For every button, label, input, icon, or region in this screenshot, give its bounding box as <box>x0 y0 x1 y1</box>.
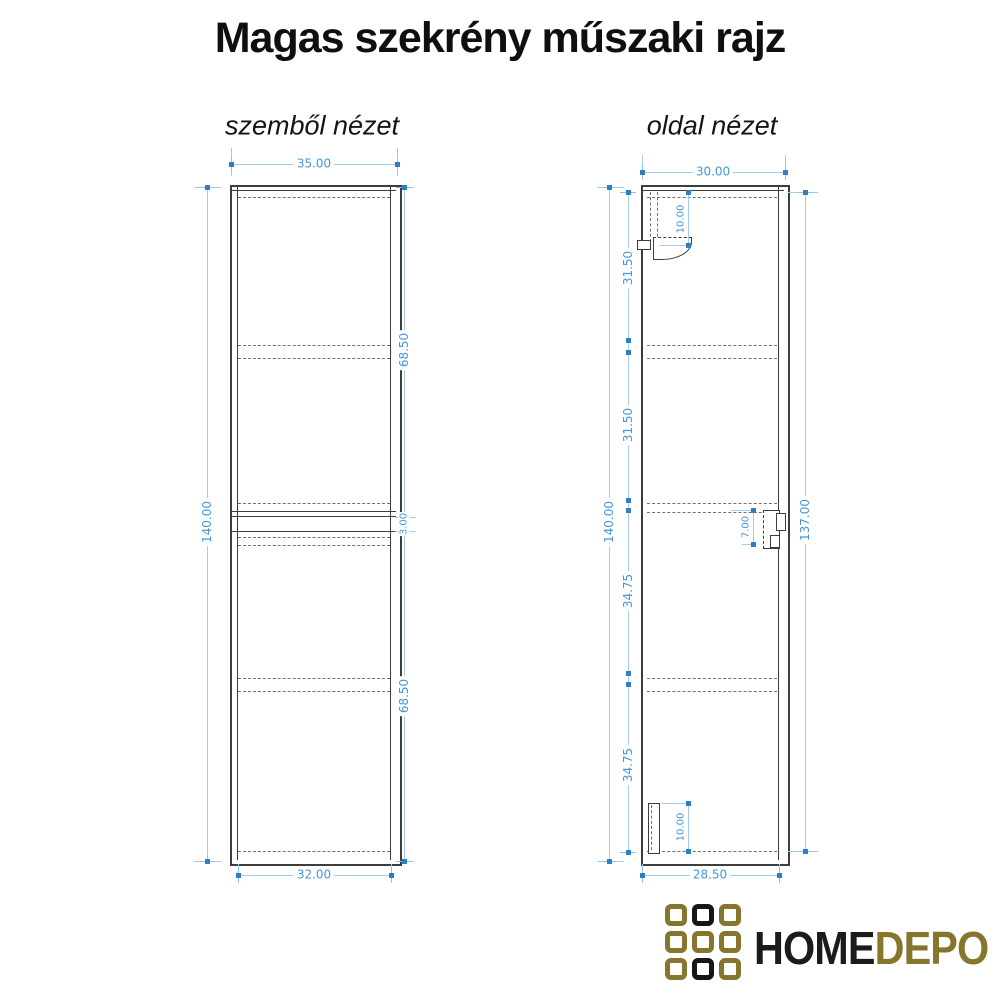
logo-grid-square-icon <box>692 904 714 926</box>
homedepo-logo: HOMEDEPO <box>0 0 1000 1000</box>
logo-text-home: HOME <box>754 922 875 974</box>
logo-text-depo: DEPO <box>875 922 989 974</box>
logo-grid-square-icon <box>719 958 741 980</box>
logo-grid-square-icon <box>665 931 687 953</box>
logo-grid-square-icon <box>719 931 741 953</box>
logo-wordmark: HOMEDEPO <box>754 921 988 975</box>
logo-grid-square-icon <box>665 904 687 926</box>
logo-grid-square-icon <box>692 931 714 953</box>
logo-grid-square-icon <box>665 958 687 980</box>
technical-drawing-page: Magas szekrény műszaki rajz szemből néze… <box>0 0 1000 1000</box>
logo-grid-square-icon <box>692 958 714 980</box>
logo-grid-square-icon <box>719 904 741 926</box>
